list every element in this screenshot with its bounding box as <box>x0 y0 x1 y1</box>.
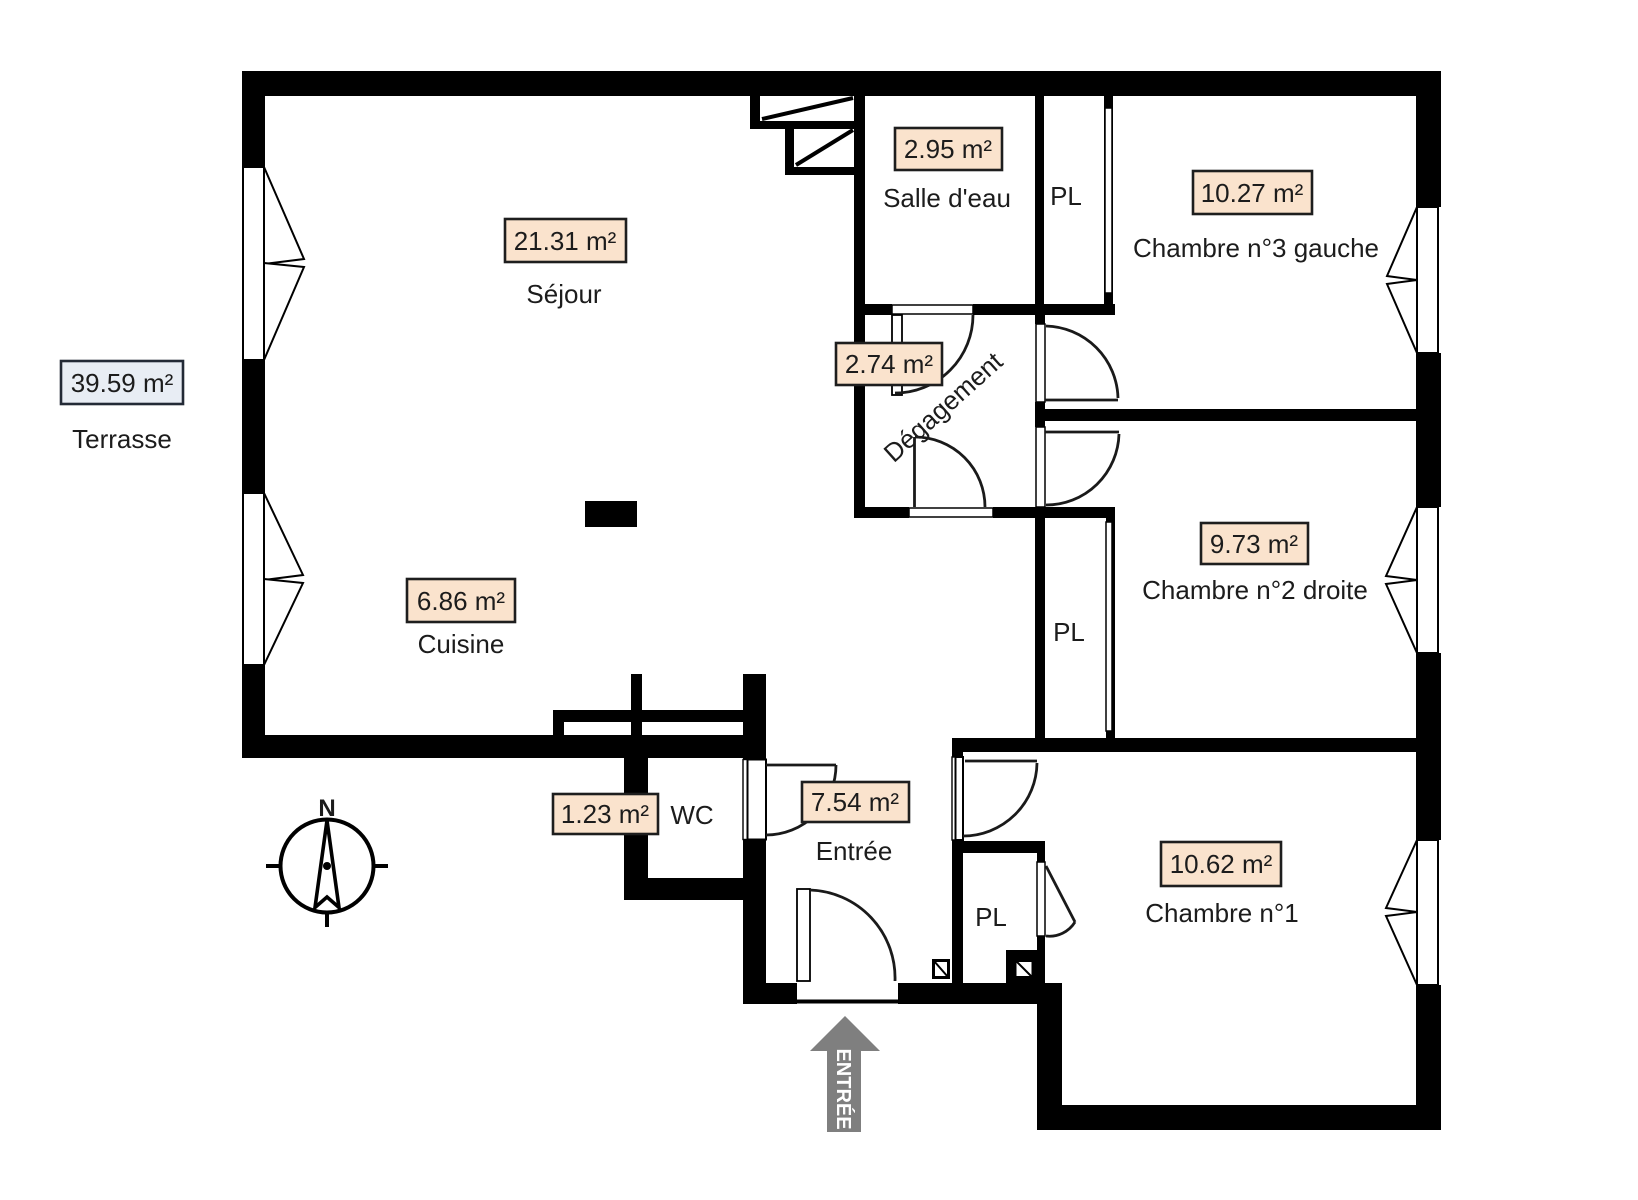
svg-text:Séjour: Séjour <box>526 279 601 309</box>
svg-text:2.95 m²: 2.95 m² <box>904 134 992 164</box>
svg-text:ENTRÉE: ENTRÉE <box>832 1048 855 1129</box>
svg-text:Terrasse: Terrasse <box>72 424 172 454</box>
svg-text:1.23 m²: 1.23 m² <box>561 799 649 829</box>
svg-text:10.27 m²: 10.27 m² <box>1201 178 1304 208</box>
svg-text:7.54 m²: 7.54 m² <box>811 787 899 817</box>
svg-text:PL: PL <box>975 902 1007 932</box>
svg-text:Salle d'eau: Salle d'eau <box>883 183 1011 213</box>
svg-text:Chambre n°1: Chambre n°1 <box>1145 898 1298 928</box>
svg-text:Entrée: Entrée <box>816 836 893 866</box>
svg-text:9.73 m²: 9.73 m² <box>1210 529 1298 559</box>
svg-text:2.74 m²: 2.74 m² <box>845 349 933 379</box>
svg-text:WC: WC <box>670 800 713 830</box>
svg-text:Cuisine: Cuisine <box>418 629 505 659</box>
svg-text:PL: PL <box>1053 617 1085 647</box>
svg-text:N: N <box>318 795 335 822</box>
svg-text:10.62 m²: 10.62 m² <box>1170 849 1273 879</box>
svg-text:39.59 m²: 39.59 m² <box>71 368 174 398</box>
svg-text:21.31 m²: 21.31 m² <box>514 226 617 256</box>
svg-text:Chambre n°2 droite: Chambre n°2 droite <box>1142 575 1368 605</box>
svg-text:6.86 m²: 6.86 m² <box>417 586 505 616</box>
svg-text:PL: PL <box>1050 181 1082 211</box>
svg-text:Chambre n°3 gauche: Chambre n°3 gauche <box>1133 233 1379 263</box>
